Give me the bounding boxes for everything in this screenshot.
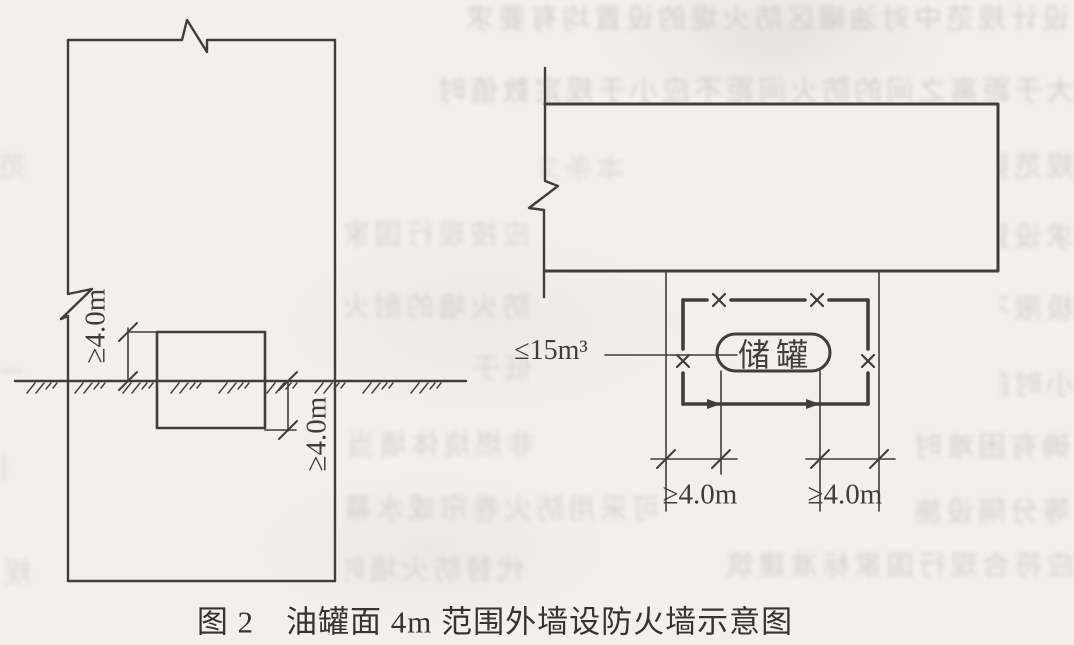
left-dimension bbox=[651, 450, 737, 468]
right-view-left-dimension-label: ≥4.0m bbox=[663, 479, 738, 512]
building-body-outline bbox=[545, 104, 998, 271]
tank-volume-label: ≤15m³ bbox=[514, 335, 588, 367]
building-outline-top bbox=[68, 20, 335, 52]
extension-lines bbox=[666, 271, 879, 511]
wall-hatch-marks bbox=[27, 383, 441, 393]
figure-2-diagram bbox=[0, 0, 1074, 645]
wall-edge-with-break bbox=[529, 68, 558, 297]
arrow-right-icon bbox=[806, 399, 820, 409]
right-elevation-view bbox=[529, 68, 998, 511]
arrow-right-icon bbox=[707, 399, 721, 409]
scanned-page: 设计规范中对油罐区防火堤的设置均有要求大于距离之间的防火间距不应小于规定数值时本… bbox=[0, 0, 1074, 645]
lower-dimension-label: ≥4.0m bbox=[301, 397, 334, 472]
upper-dimension-label: ≥4.0m bbox=[80, 289, 113, 364]
right-view-right-dimension-label: ≥4.0m bbox=[808, 479, 883, 512]
storage-tank-label: 储罐 bbox=[738, 330, 814, 376]
figure-caption: 图 2 油罐面 4m 范围外墙设防火墙示意图 bbox=[197, 597, 793, 642]
